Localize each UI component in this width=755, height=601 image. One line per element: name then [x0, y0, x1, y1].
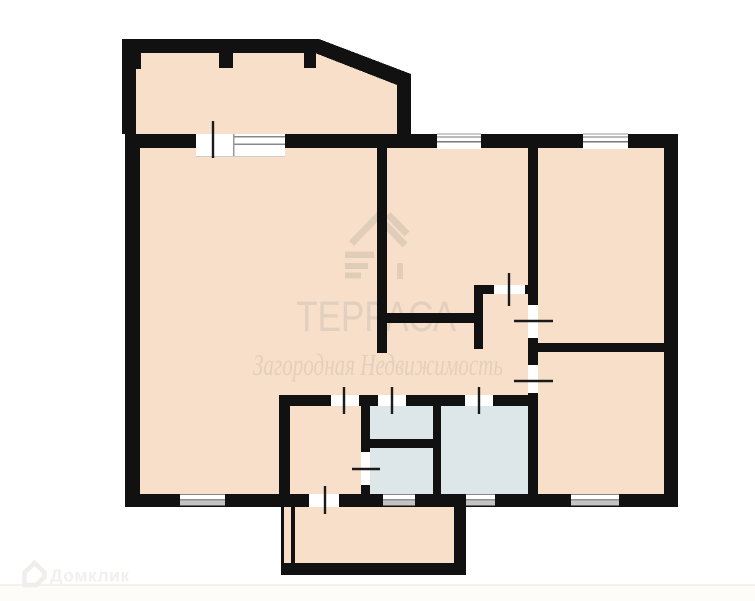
svg-text:Домклик: Домклик [50, 566, 130, 586]
